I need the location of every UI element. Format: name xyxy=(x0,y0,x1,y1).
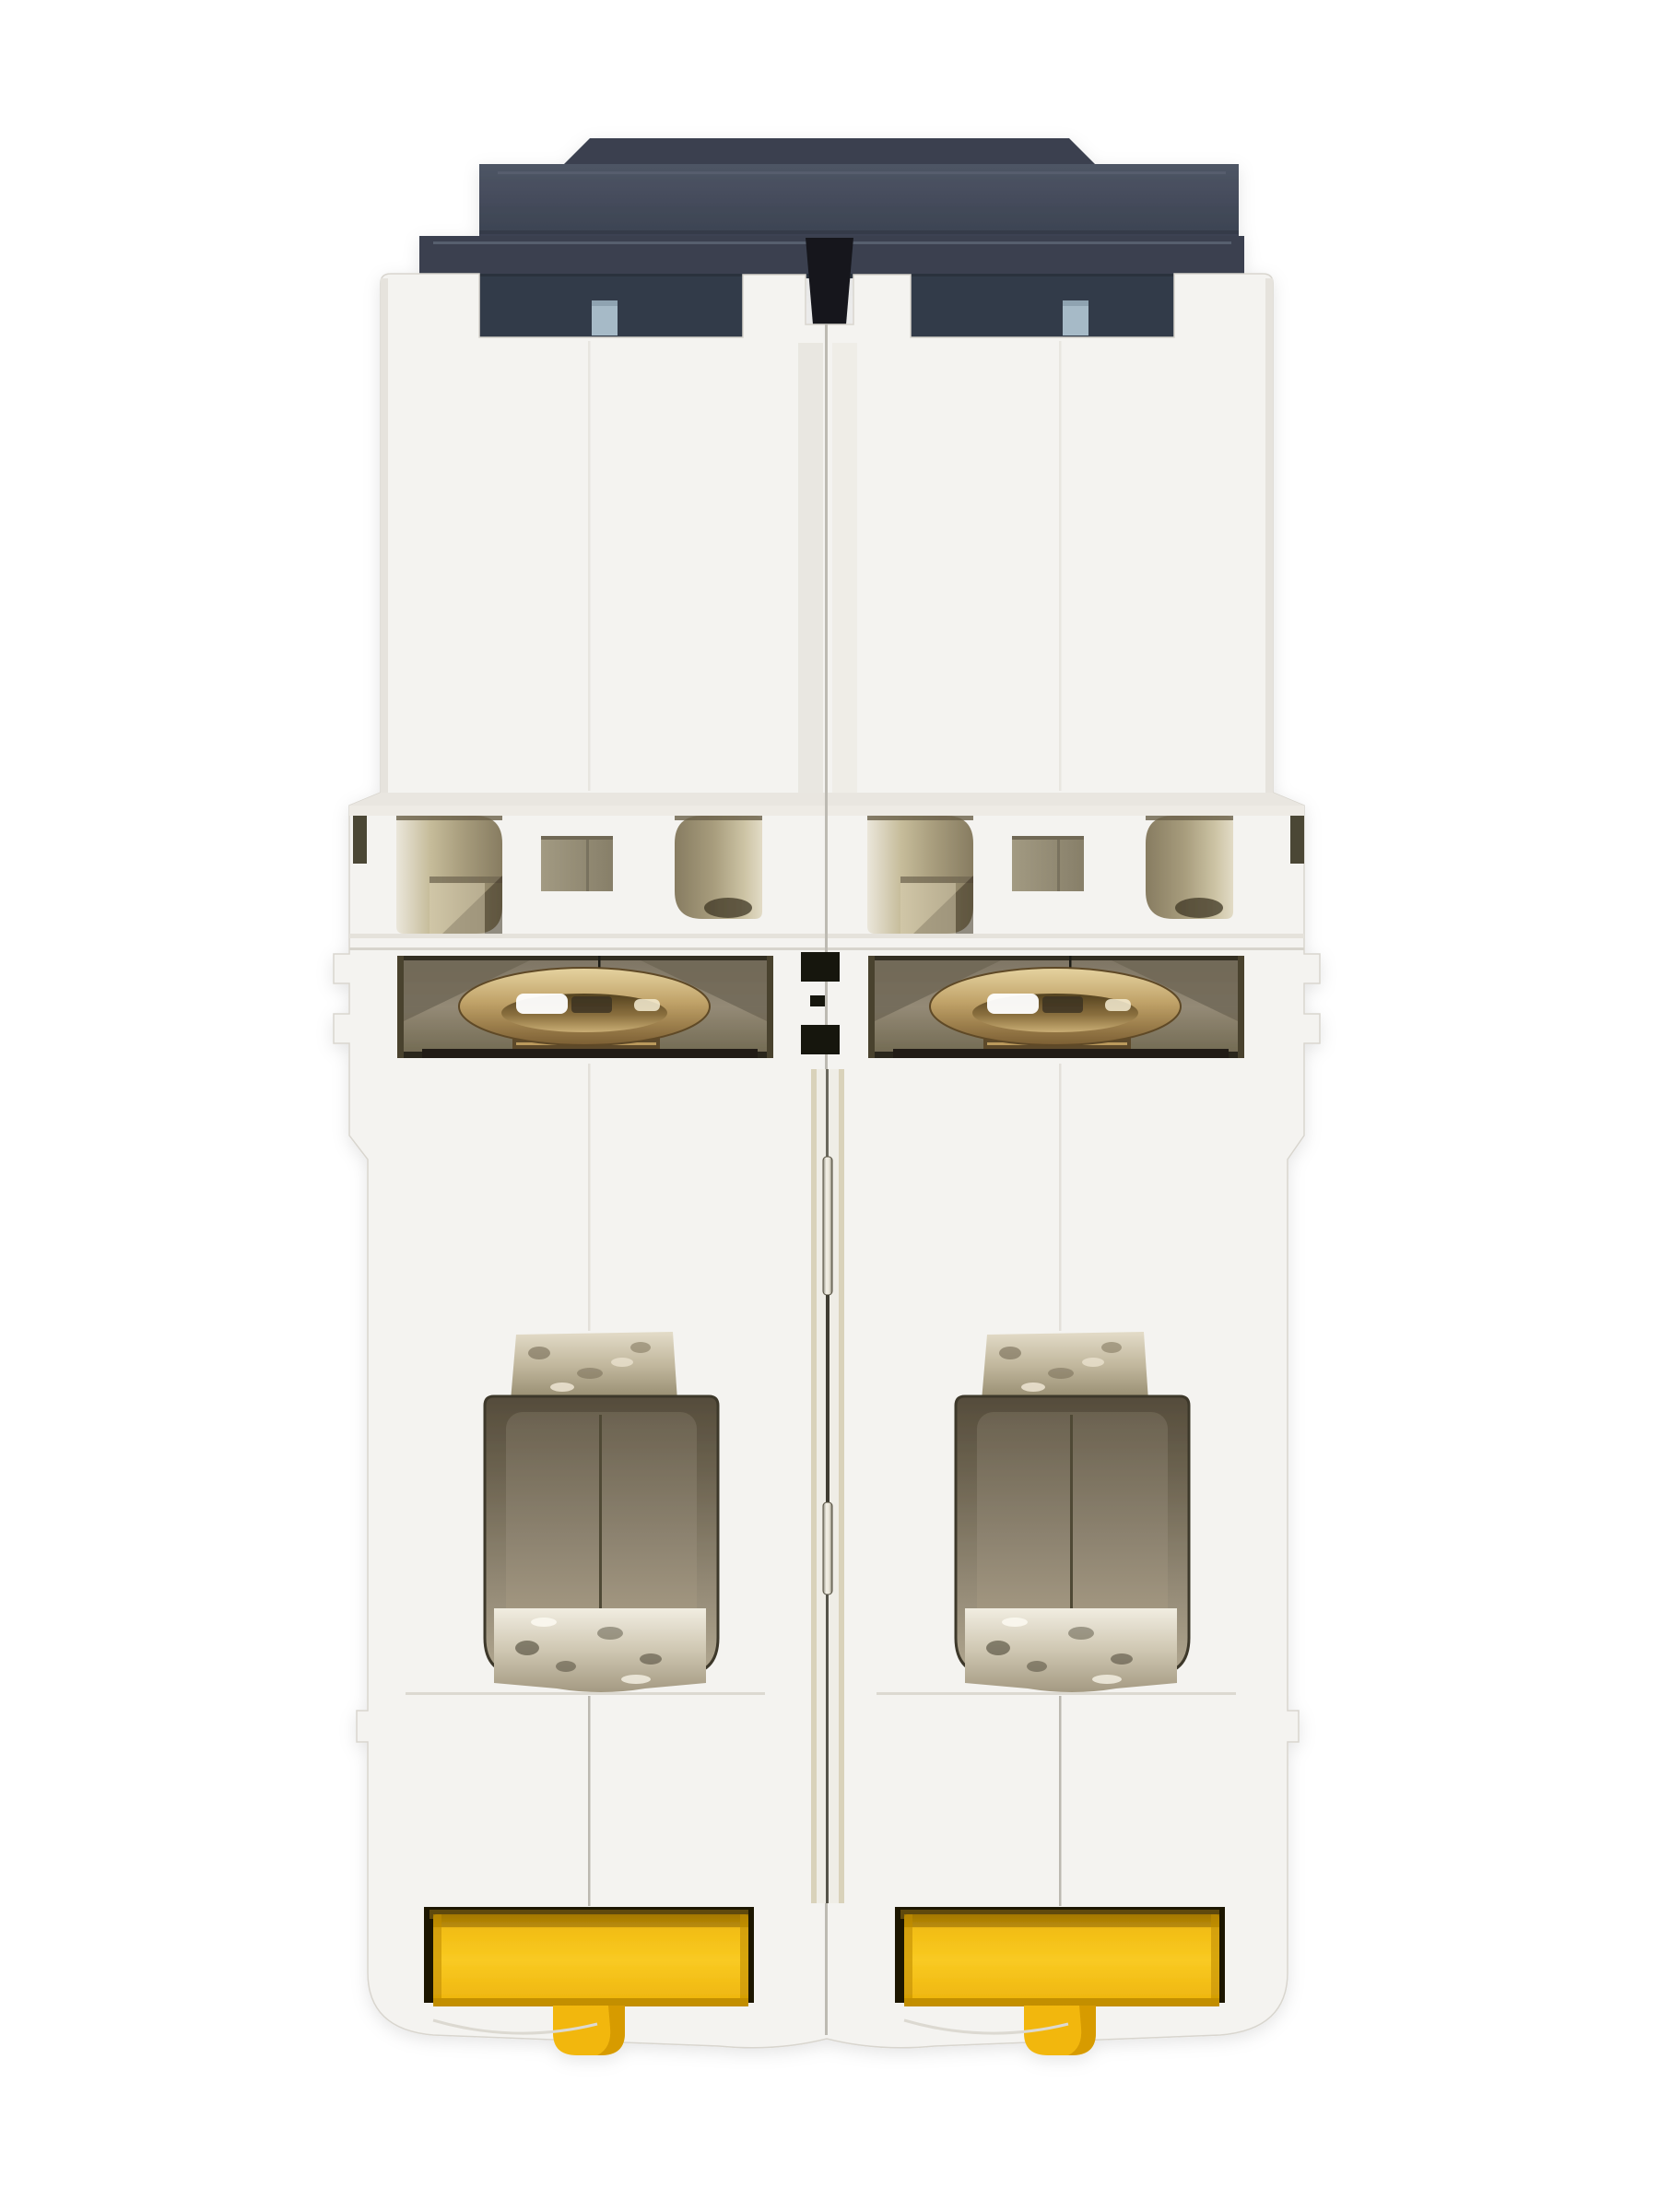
cap-center-gap xyxy=(806,238,853,324)
rod-hairline-mid xyxy=(826,1295,829,1502)
left-edge-shade xyxy=(381,278,388,793)
breaker-photo-canvas xyxy=(0,0,1659,2212)
cap-main-slab xyxy=(479,164,1239,238)
center-slot-dot xyxy=(810,995,825,1006)
center-slot-lower xyxy=(801,1025,840,1054)
right-pole-inner-shade xyxy=(832,343,857,793)
center-rod-upper xyxy=(823,1157,832,1295)
housing-cap xyxy=(419,138,1244,337)
rod-hairline-bottom xyxy=(826,1594,829,1903)
side-slot-left xyxy=(353,816,367,864)
rod-hairline-top xyxy=(826,1069,829,1161)
cap-slab-seamline xyxy=(479,230,1239,234)
center-rod-lower xyxy=(823,1502,832,1594)
center-slot-upper xyxy=(801,952,840,982)
left-pole-inner-shade xyxy=(798,343,823,793)
channel-wall-left xyxy=(811,1069,817,1903)
right-edge-shade xyxy=(1265,278,1273,793)
breaker-device xyxy=(334,138,1320,2055)
center-channel xyxy=(811,1069,844,1903)
cap-toggle-ridge xyxy=(564,138,1095,164)
cap-slab-highlight xyxy=(498,171,1226,174)
product-photo xyxy=(0,0,1659,2212)
channel-wall-right xyxy=(839,1069,844,1903)
side-slot-right xyxy=(1290,816,1304,864)
